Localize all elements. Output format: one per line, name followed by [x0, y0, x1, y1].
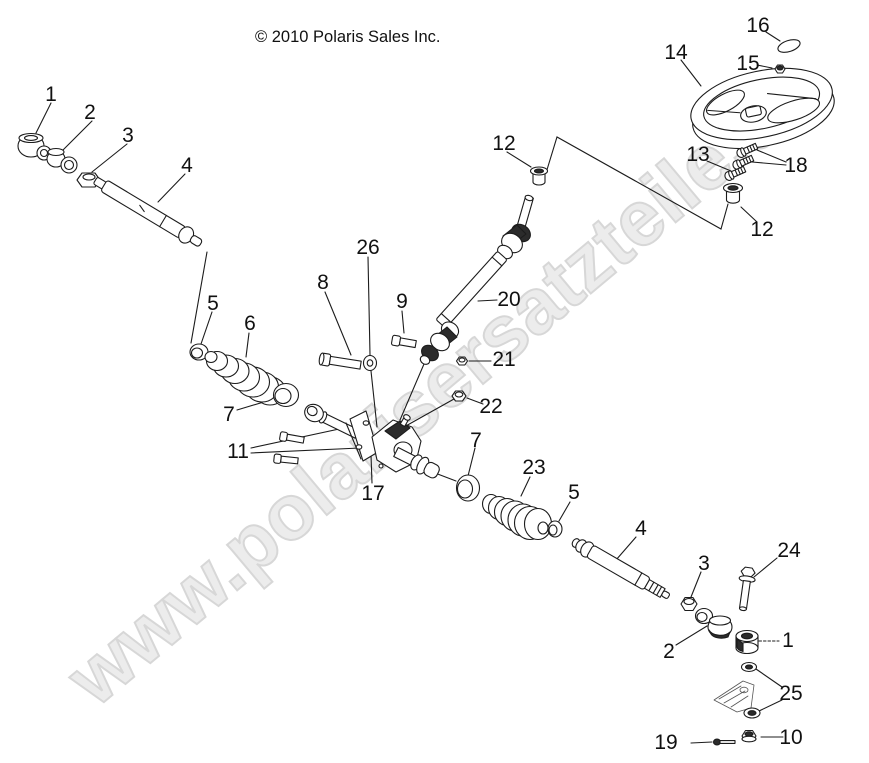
part-12-bushing-right	[724, 184, 743, 204]
callout-12-left: 12	[492, 132, 515, 156]
part-26-washer	[364, 356, 377, 371]
callout-16: 16	[746, 14, 769, 38]
copyright-text: © 2010 Polaris Sales Inc.	[255, 28, 441, 47]
callout-19: 19	[654, 731, 677, 755]
part-10-nut	[742, 731, 756, 742]
exploded-parts-drawing	[0, 0, 869, 763]
callout-23: 23	[522, 456, 545, 480]
part-2-tie-rod-end-right	[696, 609, 733, 639]
callout-24: 24	[777, 539, 800, 563]
parts-diagram-page: www.polarisersatzteile.de © 2010 Polaris…	[0, 0, 869, 763]
part-5-ring-right	[548, 521, 562, 537]
callout-5-left: 5	[207, 292, 219, 316]
part-9-bolt	[391, 335, 416, 349]
part-2-tie-rod-end-left	[47, 149, 77, 174]
part-7-boot-ring-left	[274, 384, 299, 407]
part-20-steering-shaft	[419, 194, 534, 366]
part-11-bolts	[274, 432, 305, 466]
part-7-boot-ring-right	[457, 475, 480, 501]
part-24-bolt	[735, 567, 757, 612]
part-4-tie-rod-right	[569, 534, 673, 603]
callout-3-right: 3	[698, 552, 710, 576]
callout-18: 18	[784, 154, 807, 178]
part-8-bolt	[318, 353, 361, 371]
part-19-screw	[714, 739, 736, 745]
callout-3-left: 3	[122, 124, 134, 148]
callout-4-right: 4	[635, 517, 647, 541]
callout-1-left: 1	[45, 83, 57, 107]
part-4-tie-rod-left	[91, 173, 205, 251]
part-21-nut	[457, 357, 468, 365]
callout-7-right: 7	[470, 429, 482, 453]
part-12-bushing-left	[531, 167, 548, 185]
callout-14: 14	[664, 41, 687, 65]
callout-20: 20	[497, 288, 520, 312]
callout-9: 9	[396, 290, 408, 314]
callout-4-left: 4	[181, 154, 193, 178]
callout-26: 26	[356, 236, 379, 260]
callout-12-right: 12	[750, 218, 773, 242]
callout-11: 11	[227, 440, 249, 464]
callout-6: 6	[244, 312, 256, 336]
callout-7-left: 7	[223, 403, 235, 427]
callout-2-right: 2	[663, 640, 675, 664]
callout-1-right: 1	[782, 629, 794, 653]
part-3-jam-nut-right	[681, 598, 697, 611]
callout-8: 8	[317, 271, 329, 295]
callout-17: 17	[361, 482, 384, 506]
callout-22: 22	[479, 395, 502, 419]
leader-lines	[36, 32, 786, 743]
part-1-ball-bushing-left	[18, 134, 51, 161]
callout-2-left: 2	[84, 101, 96, 125]
callout-25: 25	[779, 682, 802, 706]
callout-13: 13	[686, 143, 709, 167]
callout-21: 21	[492, 348, 515, 372]
part-15-nut	[775, 65, 785, 73]
part-16-cap	[776, 37, 801, 55]
callout-15: 15	[736, 52, 759, 76]
callout-5-right: 5	[568, 481, 580, 505]
part-1-ball-bushing-right	[736, 631, 758, 654]
part-23-bellows-boot-right	[483, 495, 552, 540]
callout-10: 10	[779, 726, 802, 750]
part-25-washers-and-bracket	[714, 663, 760, 719]
part-22-nut	[452, 391, 466, 401]
